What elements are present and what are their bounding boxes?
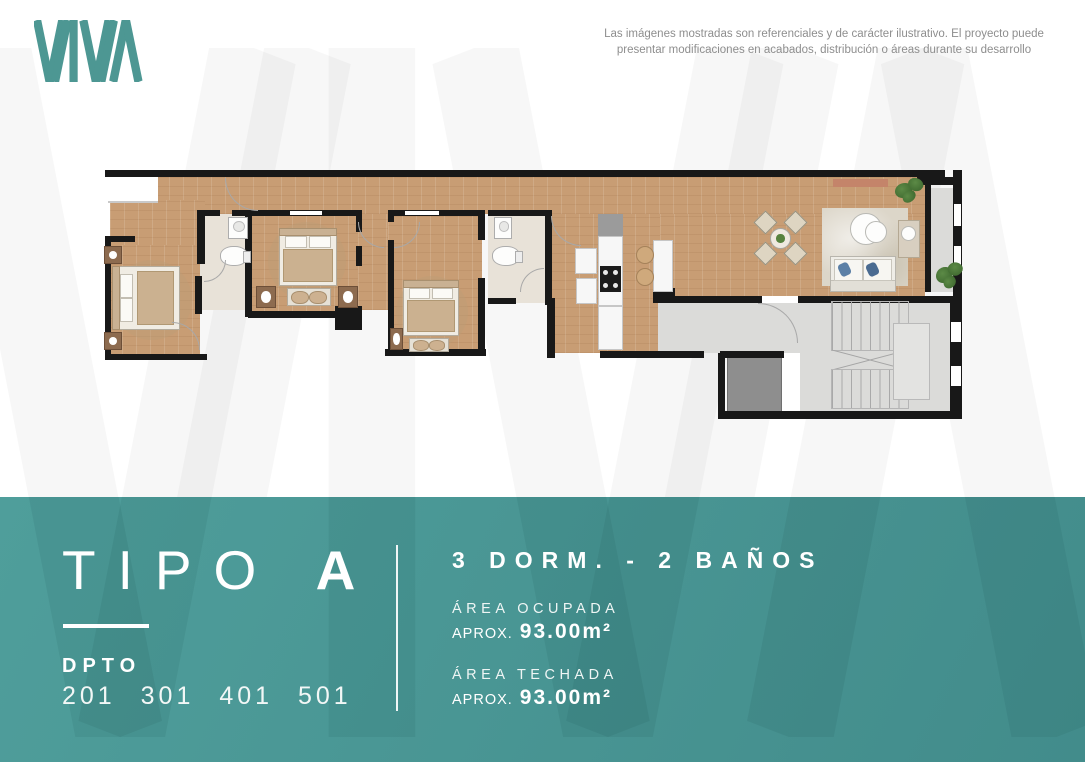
toilet-tank [515,251,523,263]
bed-master [112,266,180,330]
window [954,204,961,226]
wall [105,236,135,242]
bathroom-2-sink [494,217,512,239]
vertical-divider [396,545,398,711]
wall [478,210,485,240]
area-techada-value: APROX.93.00m² [452,686,612,710]
notch-sill [108,201,158,203]
wall [488,298,516,304]
bathroom-2-toilet [492,246,520,266]
dining-table [770,228,791,249]
bed-pv1 [285,236,307,248]
nightstand [338,286,358,308]
cushion [429,340,445,351]
wood-floor-corridor [155,177,930,214]
wall [200,210,220,216]
refrigerator [575,248,597,274]
cushion [413,340,429,351]
area-techada-number: 93.00m² [520,686,612,709]
unit-type-letter: A [316,539,356,601]
wall [600,351,704,358]
stove-icon [600,266,621,292]
dpto-label: DPTO [62,655,141,678]
wall [545,210,552,305]
window [951,322,961,342]
window-bedroom-3 [405,211,439,215]
lamp-icon [343,291,353,302]
wall [478,278,485,356]
viva-logo-icon [34,20,146,82]
bed-2 [279,228,337,286]
bed-bkh [137,271,175,324]
kitchen-base-cabinet [598,306,623,350]
wall [105,354,207,360]
window [951,366,961,386]
wall [356,246,362,266]
kitchen-island [653,240,673,292]
bed-bkv [283,249,332,282]
disclaimer-line-2: presentar modificaciones en acabados, di… [585,42,1063,58]
wall [195,276,202,314]
viva-logo: VIVA [34,20,146,82]
lamp-icon [109,337,118,346]
lamp-icon [109,251,118,260]
area-ocupada-prefix: APROX. [452,626,513,642]
title-underline [63,624,149,628]
bed-hbl [112,266,120,330]
nightstand [390,328,403,350]
door-opening [762,296,798,303]
wall-notch [108,177,158,201]
table-plant [776,234,784,242]
unit-numbers: 201 301 401 501 [62,682,352,711]
stair-landing-side [893,323,930,400]
plant [936,262,962,288]
wall [950,296,962,419]
area-ocupada-label: ÁREA OCUPADA [452,601,619,617]
nightstand [256,286,276,308]
bed-pv2 [309,236,331,248]
toilet-tank [243,251,251,263]
area-ocupada-value: APROX.93.00m² [452,620,612,644]
bar-stool [636,246,654,264]
bed-bkv [407,300,455,332]
sink-basin [233,221,245,232]
wall [925,185,931,292]
unit-type-title: TIPO A [62,538,355,602]
wall [718,353,725,416]
bed-hbt [403,280,459,288]
wall [718,411,952,419]
closet-block [335,306,362,330]
rooms-line: 3 DORM. - 2 BAÑOS [452,547,824,574]
coffee-table [865,221,887,243]
sink-basin [499,221,510,232]
tv-console [833,179,888,187]
bed-bench [409,338,449,352]
bed-ph2 [120,298,133,321]
wall [488,210,548,216]
burner-icon [613,270,618,275]
vase [901,226,916,241]
area-techada-prefix: APROX. [452,692,513,708]
sofa-part [831,280,895,291]
bathroom-1-sink [228,217,248,239]
area-ocupada-number: 93.00m² [520,620,612,643]
disclaimer: Las imágenes mostradas son referenciales… [585,26,1063,59]
cushion [291,291,309,305]
wall [547,298,555,358]
floor-plan [100,170,962,428]
plant [895,178,923,202]
area-techada-label: ÁREA TECHADA [452,667,618,683]
unit-type-label: TIPO [62,539,278,601]
wall [197,210,205,264]
disclaimer-line-1: Las imágenes mostradas son referenciales… [585,26,1063,42]
flyer-canvas: path{stroke-width:11px;} VIVA Las imágen… [0,0,1085,762]
bed-3 [403,280,459,336]
bed-bench [287,288,331,306]
bar-stool [636,268,654,286]
burner-icon [603,270,608,275]
kitchen-sink-unit [576,278,597,304]
bed-pv2 [432,288,453,299]
bed-pv1 [409,288,430,299]
nightstand [104,246,122,264]
nightstand [104,332,122,350]
wall [105,170,945,177]
kitchen-upper-cabinet [598,214,623,236]
bed-ph1 [120,274,133,297]
lamp-icon [261,291,271,302]
window-bedroom-2 [290,211,322,215]
wall [720,351,784,358]
lamp-icon [393,333,399,344]
elevator-shaft [727,356,782,413]
burner-icon [603,283,608,288]
cushion [309,291,327,305]
sofa [830,256,896,292]
bed-hbt [279,228,337,236]
burner-icon [613,283,618,288]
